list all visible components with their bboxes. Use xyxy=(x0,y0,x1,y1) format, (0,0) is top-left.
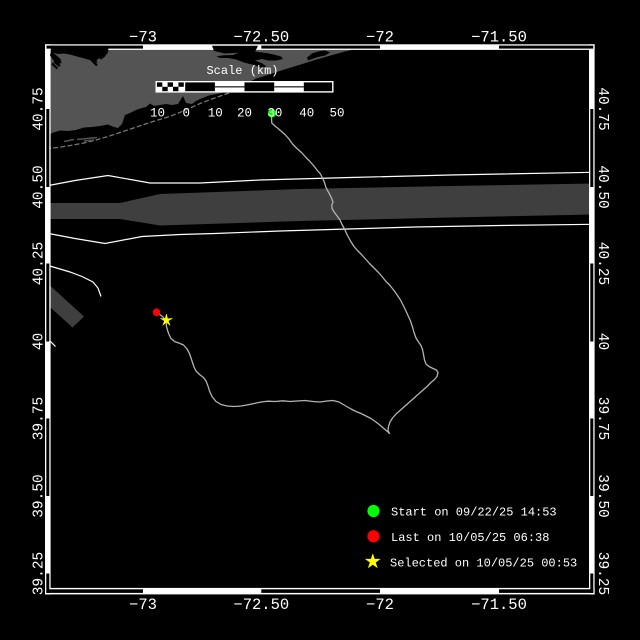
svg-text:−73: −73 xyxy=(129,29,157,47)
svg-text:Start on 09/22/25 14:53: Start on 09/22/25 14:53 xyxy=(391,506,557,520)
svg-text:−71.50: −71.50 xyxy=(471,596,527,614)
svg-text:40.25: 40.25 xyxy=(32,242,48,286)
svg-text:−72: −72 xyxy=(366,596,394,614)
svg-text:40.75: 40.75 xyxy=(594,87,610,131)
svg-text:20: 20 xyxy=(237,107,252,121)
svg-text:10: 10 xyxy=(208,107,223,121)
svg-text:−72.50: −72.50 xyxy=(233,29,289,47)
svg-text:0: 0 xyxy=(182,107,190,121)
svg-text:39.25: 39.25 xyxy=(32,552,48,596)
svg-text:−73: −73 xyxy=(129,596,157,614)
svg-text:50: 50 xyxy=(329,107,344,121)
svg-text:Last on 10/05/25 06:38: Last on 10/05/25 06:38 xyxy=(391,531,549,545)
svg-text:Scale (km): Scale (km) xyxy=(206,64,278,78)
svg-text:39.50: 39.50 xyxy=(32,474,48,518)
svg-text:−72: −72 xyxy=(366,29,394,47)
svg-text:39.75: 39.75 xyxy=(32,397,48,441)
svg-text:39.25: 39.25 xyxy=(594,552,610,596)
svg-text:40.50: 40.50 xyxy=(594,165,610,209)
svg-text:Selected on 10/05/25 00:53: Selected on 10/05/25 00:53 xyxy=(390,556,577,570)
svg-text:40: 40 xyxy=(299,107,314,121)
svg-text:40: 40 xyxy=(32,333,48,350)
svg-text:30: 30 xyxy=(267,107,282,121)
svg-text:40.25: 40.25 xyxy=(594,242,610,286)
svg-text:40: 40 xyxy=(594,333,610,350)
svg-text:−71.50: −71.50 xyxy=(471,29,527,47)
svg-text:39.50: 39.50 xyxy=(594,474,610,518)
svg-text:−72.50: −72.50 xyxy=(233,596,289,614)
svg-text:40.50: 40.50 xyxy=(32,165,48,209)
svg-text:40.75: 40.75 xyxy=(32,87,48,131)
svg-text:39.75: 39.75 xyxy=(594,397,610,441)
svg-text:10: 10 xyxy=(150,107,165,121)
